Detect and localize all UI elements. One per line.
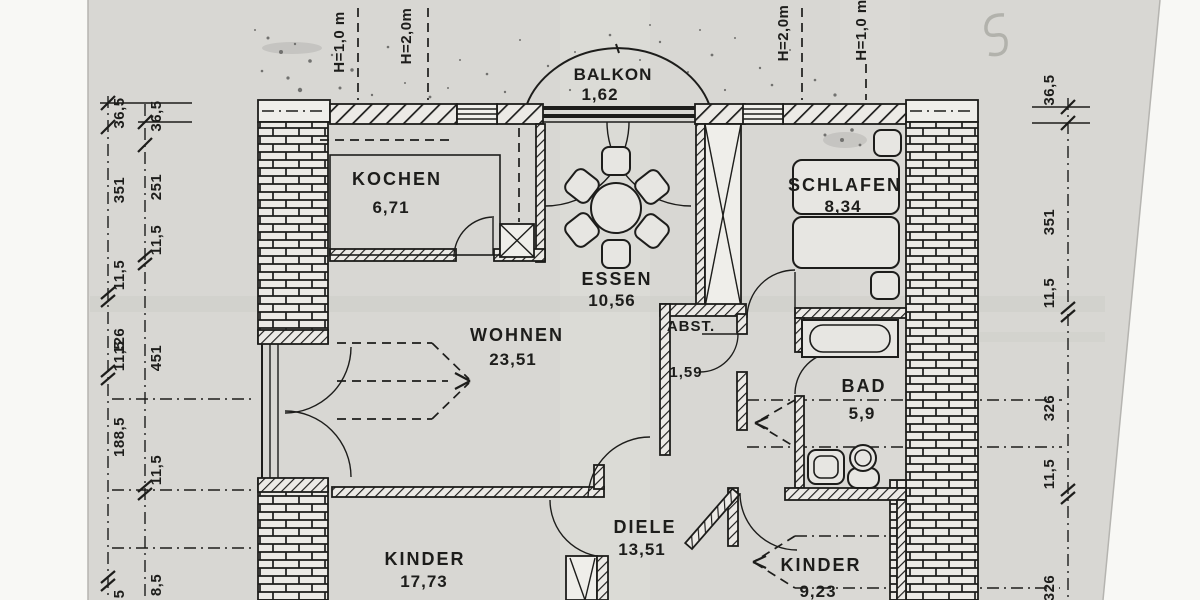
room-area-wohnen: 23,51: [489, 350, 537, 369]
wall-top: [497, 104, 543, 124]
room-label-schlafen: SCHLAFEN: [788, 175, 902, 195]
wall-top: [330, 104, 457, 124]
room-label-wohnen: WOHNEN: [470, 325, 564, 345]
wall-top: [695, 104, 745, 124]
wall-abst-top: [660, 304, 746, 316]
dim-label: 11,5: [1041, 278, 1058, 308]
room-area-kochen: 6,71: [372, 198, 409, 217]
wall-kitchen-right: [536, 124, 545, 262]
wall-brick-right: [906, 122, 978, 600]
bed: [793, 217, 899, 268]
wall-kinder-right: [897, 500, 906, 600]
dim-label: 451: [148, 345, 165, 372]
room-area-kinder-right: 9,23: [799, 582, 836, 600]
height-label-right-outer: H=1,0 m: [853, 0, 870, 61]
dim-label: 11,5: [111, 260, 128, 290]
wall-corridor-left: [737, 372, 747, 430]
room-area-diele: 13,51: [618, 540, 666, 559]
dim-label: 11,5: [148, 455, 165, 485]
wall-bad-bottom: [785, 488, 906, 500]
wall-top: [783, 104, 906, 124]
window-jamb: [258, 478, 328, 492]
chimney: [566, 556, 608, 600]
room-label-abst: ABST.: [667, 318, 715, 335]
room-area-essen: 10,56: [588, 291, 636, 310]
dim-label: 326: [1041, 395, 1058, 422]
room-label-kochen: KOCHEN: [352, 169, 442, 189]
window-jamb: [258, 330, 328, 344]
window-schlafen: [743, 104, 783, 124]
chair: [602, 240, 630, 268]
dim-label: 5: [111, 590, 128, 599]
dim-label: 11,5: [148, 225, 165, 255]
wall-bad-left: [795, 396, 804, 488]
room-area-kinder-left: 17,73: [400, 572, 448, 591]
dim-label: 251: [148, 174, 165, 201]
wall-wohnen-kinder: [332, 487, 604, 497]
room-area-balkon: 1,62: [581, 85, 618, 104]
wall-schlafen-bottom: [795, 308, 906, 318]
floor-plan-scan: 36,5 351 11,5 126 11,5 188,5 5 36,5 251 …: [0, 0, 1200, 600]
dim-label: 36,5: [1041, 74, 1058, 105]
room-label-kinder-right: KINDER: [780, 555, 861, 575]
dim-label: 351: [1041, 209, 1058, 236]
room-area-schlafen: 8,34: [824, 197, 861, 216]
floor-plan-svg: 36,5 351 11,5 126 11,5 188,5 5 36,5 251 …: [0, 0, 1200, 600]
wall-corridor-left: [737, 314, 747, 334]
duct-shaft-kitchen: [500, 224, 534, 257]
dim-label: 188,5: [111, 417, 128, 457]
room-area-bad: 5,9: [849, 404, 876, 423]
dim-label: 36,5: [111, 97, 128, 128]
dim-label: 351: [111, 177, 128, 204]
height-label-left-inner: H=2,0m: [398, 8, 415, 65]
window-kitchen: [457, 104, 497, 124]
dining-table: [591, 183, 641, 233]
dim-label: 11,5: [111, 341, 128, 371]
room-label-bad: BAD: [842, 376, 887, 396]
height-label-left-outer: H=1,0 m: [331, 11, 348, 72]
wall-shaft-left: [696, 124, 705, 307]
dim-label: 8,5: [148, 574, 165, 596]
room-label-diele: DIELE: [613, 517, 676, 537]
left-margin: [0, 0, 88, 600]
room-label-essen: ESSEN: [581, 269, 652, 289]
height-label-right-inner: H=2,0m: [775, 5, 792, 62]
nightstand: [871, 272, 899, 299]
dim-label: 36,5: [148, 100, 165, 131]
chair: [602, 147, 630, 175]
dim-label: 11,5: [1041, 459, 1058, 489]
nightstand: [874, 130, 901, 156]
room-area-abst: 1,59: [669, 364, 702, 381]
room-label-kinder-left: KINDER: [384, 549, 465, 569]
room-label-balkon: BALKON: [574, 65, 653, 84]
duct-shaft-tall: [705, 124, 741, 307]
